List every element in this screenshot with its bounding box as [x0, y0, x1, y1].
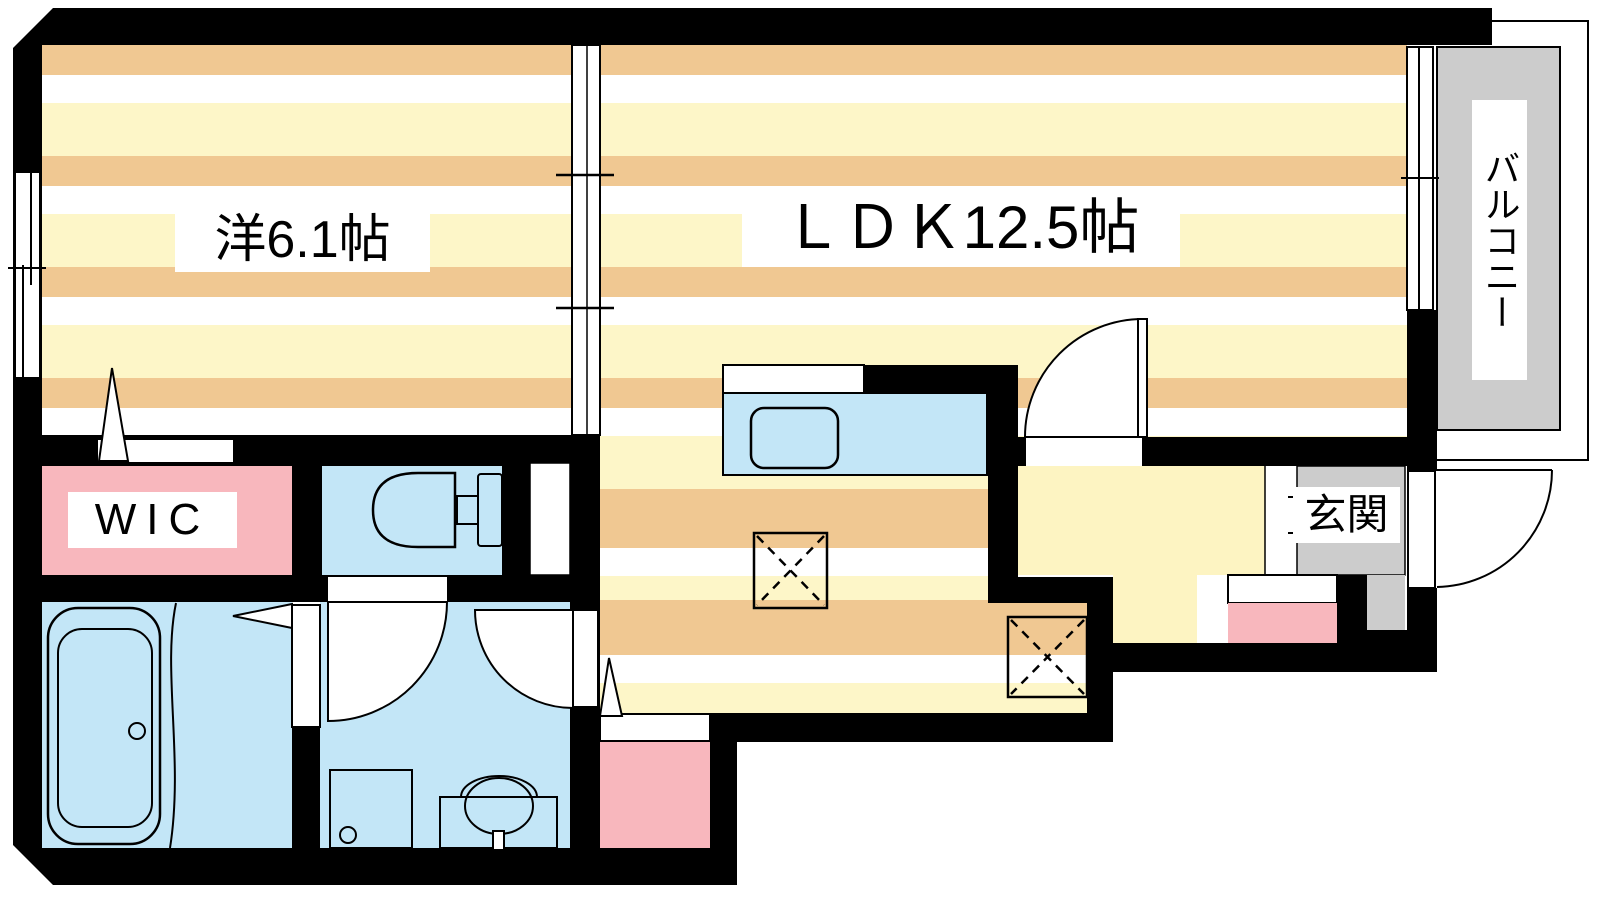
wall — [1018, 437, 1026, 466]
entrance-door-leaf — [1408, 471, 1435, 588]
sliding-partition — [572, 45, 600, 435]
dashed-x-marks — [757, 536, 824, 605]
dashed-x-marks — [1011, 620, 1084, 694]
wic-door-swing-triangle — [99, 368, 128, 461]
closet-opening — [600, 714, 710, 741]
hallway-floor — [1018, 466, 1265, 575]
floor-plan: 洋6.1帖 ＬＤＫ12.5帖 WIC 玄関 バルコニー — [0, 0, 1600, 900]
kitchen-counter — [723, 393, 987, 475]
bathroom-floor — [42, 602, 292, 848]
wall — [1367, 630, 1407, 643]
wall — [988, 577, 1113, 603]
wic-label: WIC — [68, 492, 237, 548]
ldk-hall-door-arc — [1025, 319, 1143, 437]
wall — [1113, 643, 1437, 672]
genkan-floor-step — [1367, 575, 1405, 630]
hallway-floor-lower — [1113, 575, 1197, 643]
pipe-space — [530, 463, 570, 575]
plan-drawing — [0, 0, 1600, 900]
washroom-door-leaf — [573, 610, 598, 707]
wall — [1407, 588, 1437, 643]
wall — [13, 8, 1492, 45]
wall — [988, 365, 1018, 577]
wall — [1142, 437, 1437, 466]
ldk-hall-door-leaf — [1138, 319, 1147, 437]
toilet-floor — [322, 463, 502, 575]
wall — [13, 848, 737, 885]
balcony-label: バルコニー — [1472, 100, 1527, 380]
wall — [1407, 310, 1437, 471]
hall-doorway — [1026, 439, 1142, 466]
shoe-cabinet — [1228, 603, 1337, 643]
wall — [292, 463, 322, 575]
toilet-doorway — [328, 577, 447, 602]
shoe-cabinet-top — [1228, 575, 1337, 603]
wall — [710, 713, 1113, 742]
storage-closet-floor — [600, 742, 710, 848]
kitchen-counter-top — [723, 365, 864, 393]
window-west — [15, 172, 40, 378]
wall — [13, 575, 600, 602]
closet-door-swing-triangle — [600, 658, 622, 716]
wall — [864, 365, 988, 393]
wall — [292, 727, 320, 848]
wall — [710, 742, 737, 885]
ldk-label: ＬＤＫ12.5帖 — [742, 188, 1180, 267]
western-room-label: 洋6.1帖 — [175, 208, 430, 272]
wall — [502, 463, 530, 575]
washbasin-faucet — [493, 831, 504, 850]
entrance-label: 玄関 — [1293, 487, 1400, 543]
bathroom-door-leaf — [292, 605, 320, 727]
entrance-door-arc — [1437, 470, 1552, 587]
